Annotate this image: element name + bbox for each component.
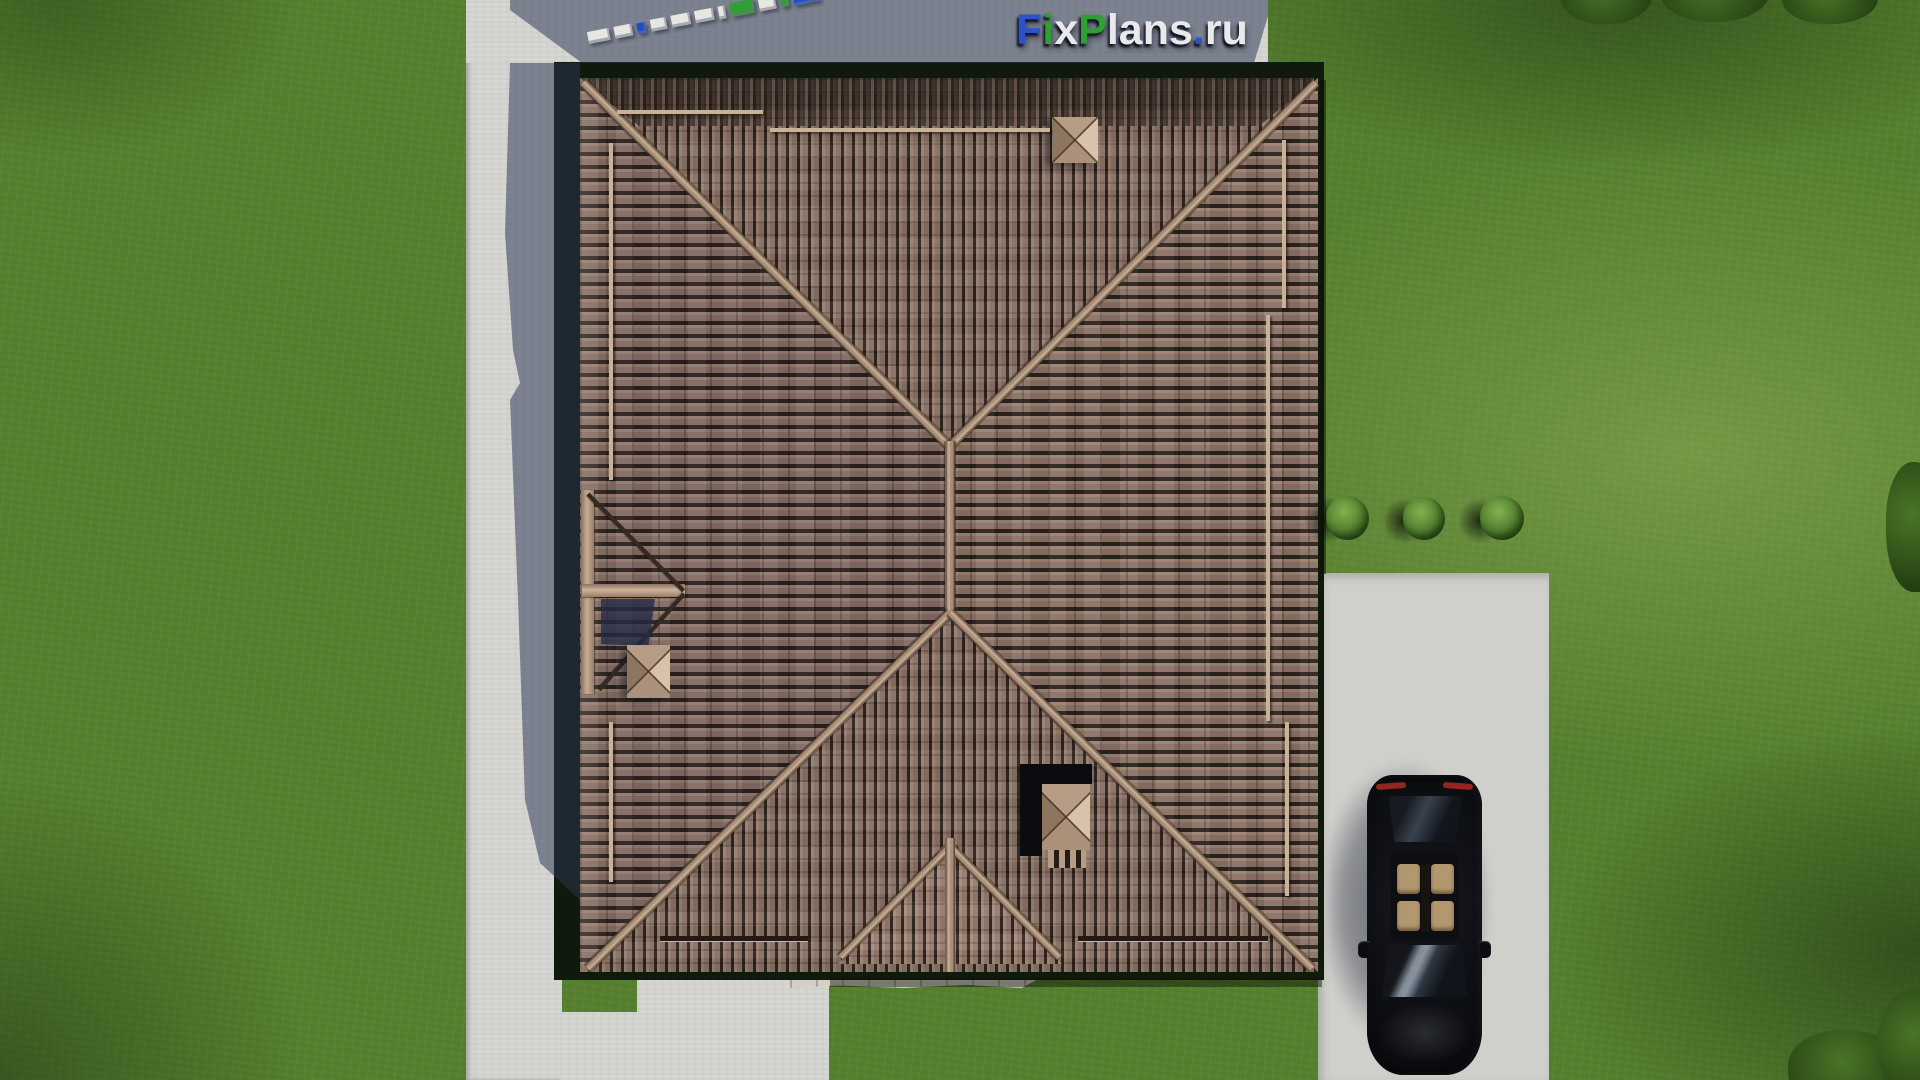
ground-3d-letter (694, 8, 715, 23)
gable-ridge-vertical (945, 838, 955, 972)
tree-canopy (1560, 0, 1652, 24)
patio (637, 975, 829, 1080)
tree-canopy (1886, 462, 1920, 592)
watermark-letter: . (1193, 6, 1205, 54)
watermark-letter: x (1054, 6, 1078, 54)
car-seat (1431, 901, 1454, 931)
bush (1403, 497, 1445, 540)
bush (1480, 496, 1524, 540)
watermark-letter: r (1205, 6, 1222, 54)
watermark-letter: l (1107, 6, 1119, 54)
snow-guard-top-1 (617, 110, 763, 114)
tree-canopy (1660, 0, 1770, 22)
watermark-letter: F (1016, 6, 1042, 54)
roof-ladder-right-1 (1282, 140, 1286, 308)
bumpout-chimney (627, 645, 670, 698)
snow-guard-top-2 (770, 128, 1050, 132)
ground-3d-letter (729, 0, 755, 17)
ground-3d-letter (758, 0, 777, 11)
ground-3d-letter (670, 12, 691, 27)
car-seat (1397, 901, 1420, 931)
watermark-letter: i (1042, 6, 1054, 54)
car-rear-window (1385, 796, 1465, 842)
bush (1326, 496, 1369, 540)
car-seat (1431, 864, 1454, 894)
chimney-top (1052, 117, 1098, 163)
watermark-logo: FixPlans.ru (1016, 6, 1248, 55)
roof-ladder-left-lower (609, 722, 613, 882)
watermark-letter: P (1078, 6, 1107, 54)
chimney-br-vents (1048, 850, 1086, 868)
aerial-house-render: FixPlans.ru (0, 0, 1920, 1080)
ground-3d-letter (792, 0, 821, 6)
ground-3d-letter (717, 5, 726, 19)
tree-canopy (1878, 990, 1920, 1080)
watermark-letter: a (1119, 6, 1143, 54)
snow-guard-bottom-right (1078, 936, 1268, 942)
ground-3d-letter (779, 0, 789, 7)
roof-ladder-right-3 (1285, 722, 1289, 896)
car-mirror-right (1479, 941, 1491, 958)
ground-3d-letter (636, 21, 647, 34)
chimney-br-shadow-left (1020, 764, 1042, 856)
ground-3d-letter (587, 28, 611, 44)
roof-ladder-left-upper (609, 143, 613, 480)
watermark-letter: n (1143, 6, 1169, 54)
eave-shadow-bottom (830, 978, 1322, 987)
car-mirror-left (1358, 941, 1370, 958)
car-windshield (1382, 945, 1468, 997)
roof-top-course-shadow (580, 78, 1318, 126)
bumpout-ridge-horizontal (582, 584, 685, 597)
snow-guard-bottom-left (660, 936, 808, 942)
roof-ladder-right-2 (1266, 315, 1270, 721)
car-hood-reflection (1380, 1002, 1470, 1064)
bumpout-wall-shadow (601, 599, 655, 646)
watermark-letter: u (1222, 6, 1248, 54)
ground-3d-letter (613, 24, 633, 39)
main-ridge-vertical (945, 441, 955, 617)
walkway-connector (560, 1012, 640, 1080)
car-console (1421, 864, 1430, 932)
tree-canopy (1782, 0, 1878, 24)
chimney-bottom-right (1042, 784, 1090, 850)
car-seat (1397, 864, 1420, 894)
ground-3d-letter (650, 17, 668, 32)
watermark-letter: s (1169, 6, 1193, 54)
